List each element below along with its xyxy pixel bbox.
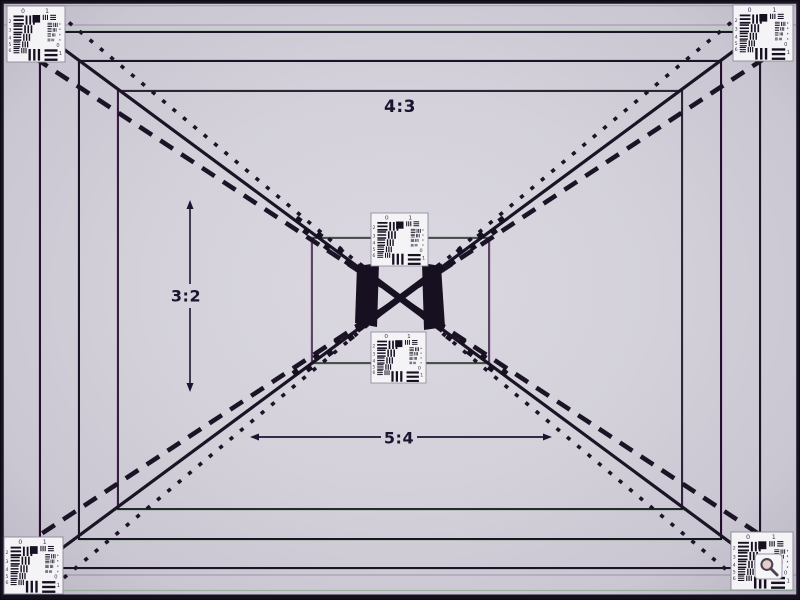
- svg-text:1: 1: [422, 255, 425, 261]
- svg-text:3: 3: [733, 555, 736, 561]
- svg-text:0: 0: [385, 216, 389, 222]
- svg-text:2: 2: [6, 550, 9, 556]
- lens-test-chart-photo: 0123456010123456010123456010123456010123…: [0, 0, 800, 600]
- svg-text:0: 0: [420, 248, 423, 254]
- svg-text:6: 6: [9, 48, 12, 54]
- usaf-target-center-top: 012345601: [371, 213, 428, 266]
- svg-text:0: 0: [418, 365, 421, 371]
- svg-text:6: 6: [372, 370, 375, 376]
- svg-text:1: 1: [772, 7, 776, 14]
- center-cross-pattern: [355, 263, 445, 330]
- svg-text:2: 2: [372, 343, 375, 349]
- magnifier-icon: [755, 554, 782, 579]
- svg-text:0: 0: [784, 42, 787, 48]
- svg-text:1: 1: [408, 216, 412, 222]
- aspect-ratio-label-4-3: 4:3: [384, 97, 416, 117]
- svg-text:3: 3: [9, 28, 12, 34]
- test-chart-graphics: 0123456010123456010123456010123456010123…: [0, 0, 800, 600]
- svg-text:0: 0: [746, 534, 750, 541]
- svg-text:1: 1: [407, 334, 411, 340]
- aspect-ratio-label-3-2: 3:2: [171, 287, 201, 306]
- svg-text:1: 1: [43, 539, 47, 546]
- svg-text:6: 6: [735, 47, 738, 53]
- svg-text:6: 6: [733, 576, 736, 582]
- svg-text:6: 6: [6, 580, 9, 586]
- svg-text:3: 3: [735, 27, 738, 33]
- svg-text:0: 0: [748, 7, 752, 14]
- aspect-ratio-label-5-4: 5:4: [384, 429, 414, 448]
- svg-text:2: 2: [373, 225, 376, 231]
- svg-text:4: 4: [373, 241, 376, 247]
- svg-text:4: 4: [733, 563, 736, 569]
- svg-text:5: 5: [733, 570, 736, 576]
- svg-text:2: 2: [733, 546, 736, 552]
- svg-text:1: 1: [59, 51, 62, 57]
- svg-text:5: 5: [6, 574, 9, 580]
- usaf-target-center-bottom: 012345601: [371, 332, 426, 383]
- svg-text:5: 5: [372, 365, 375, 371]
- usaf-target-top-left: 012345601: [7, 6, 65, 62]
- svg-text:2: 2: [9, 19, 12, 25]
- svg-text:4: 4: [372, 358, 375, 364]
- svg-text:5: 5: [9, 42, 12, 48]
- svg-text:0: 0: [18, 539, 22, 546]
- svg-text:5: 5: [735, 41, 738, 47]
- svg-text:3: 3: [372, 351, 375, 357]
- svg-text:4: 4: [735, 34, 738, 40]
- usaf-target-bottom-left: 012345601: [4, 537, 63, 594]
- svg-text:0: 0: [54, 575, 57, 581]
- svg-text:4: 4: [6, 567, 9, 573]
- svg-text:1: 1: [787, 50, 790, 56]
- svg-text:0: 0: [784, 571, 787, 577]
- svg-text:2: 2: [735, 18, 738, 24]
- svg-text:6: 6: [373, 253, 376, 259]
- svg-text:1: 1: [420, 373, 423, 379]
- svg-text:4: 4: [9, 35, 12, 41]
- svg-text:1: 1: [57, 583, 60, 589]
- svg-text:3: 3: [373, 233, 376, 239]
- svg-text:0: 0: [56, 43, 59, 49]
- svg-text:0: 0: [21, 8, 25, 15]
- svg-text:1: 1: [786, 579, 789, 585]
- svg-text:1: 1: [45, 8, 49, 15]
- center-bar-left: [355, 263, 379, 327]
- usaf-target-top-right: 012345601: [733, 5, 793, 61]
- svg-text:1: 1: [772, 534, 776, 541]
- svg-text:0: 0: [384, 334, 388, 340]
- svg-text:5: 5: [373, 247, 376, 253]
- svg-text:3: 3: [6, 559, 9, 565]
